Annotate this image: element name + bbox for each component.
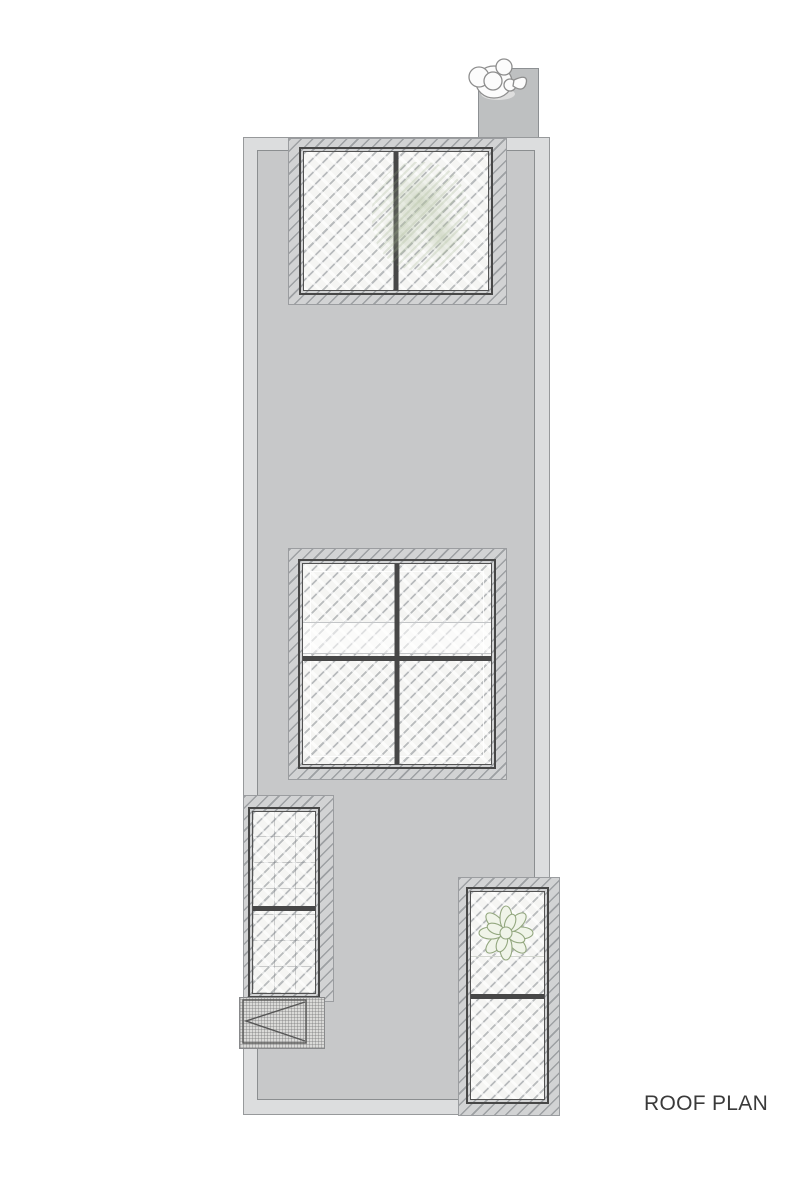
skylight-middle-glass [302, 563, 492, 765]
drawing-title: ROOF PLAN [644, 1092, 768, 1116]
skylight-left-frame [248, 807, 320, 998]
skylight-right-mullion [470, 994, 545, 999]
skylight-middle-mullion-v [395, 563, 400, 765]
hatch-swing-arrow-icon [239, 997, 323, 1047]
tree-canopy-symbol [372, 162, 468, 270]
skylight-middle-frame [298, 559, 496, 769]
roof-plan-drawing: ROOF PLAN [0, 0, 800, 1201]
plant-symbol [472, 897, 542, 969]
skylight-left-curb [243, 795, 334, 1002]
skylight-left-mullion [252, 906, 316, 911]
vent-fixture-icon [460, 52, 538, 110]
skylight-middle-curb [288, 548, 507, 780]
skylight-left-glass [252, 811, 316, 994]
